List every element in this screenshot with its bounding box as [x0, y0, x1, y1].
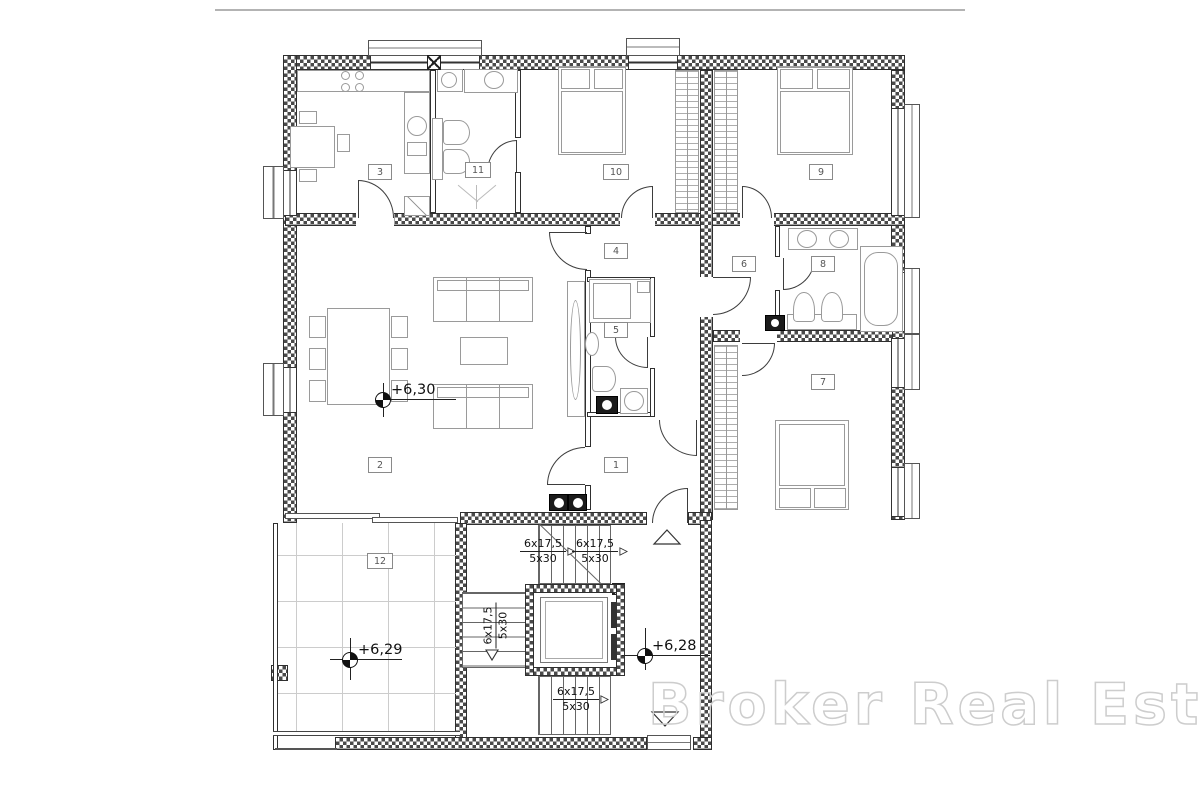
pillow: [594, 69, 623, 89]
stair-going: 5x30: [498, 612, 510, 640]
room-label-6: 6: [732, 256, 756, 272]
room-label-3: 3: [368, 164, 392, 180]
duct-shaft: [568, 494, 587, 511]
coffee-table: [460, 337, 508, 365]
room-label-12: 12: [367, 553, 393, 569]
terrace-sliding-door-a: [285, 513, 380, 519]
wall-room11-room10-lower: [515, 172, 521, 213]
wardrobe-room9: [714, 70, 738, 213]
stairs-up-arrow-icon: [652, 528, 682, 546]
dining-chair: [309, 348, 326, 370]
bath5-sink: [585, 332, 599, 356]
sofa: [433, 384, 533, 429]
dining-chair: [391, 316, 408, 338]
kitchen-chair: [299, 111, 317, 124]
wardrobe-room10: [675, 70, 699, 213]
pillow: [779, 488, 811, 508]
wall-bottom-corner: [693, 737, 712, 750]
duct-shaft: [549, 494, 568, 511]
room-label-4: 4: [604, 243, 628, 259]
window-frame-left-living: [263, 363, 284, 416]
wall-room6-bath8-upper: [775, 226, 780, 257]
blanket: [780, 91, 850, 153]
elevator-shaft-wall-top: [525, 584, 625, 593]
duct-shaft: [765, 315, 785, 331]
stair-label-upper-left: 6x17,5 5x30: [517, 538, 569, 565]
door-arc-bath11: [487, 140, 517, 172]
stairs-down-small-arrow-icon: [484, 648, 500, 662]
stair-arrow-icon: [619, 547, 628, 556]
shower-shelf: [637, 281, 650, 293]
wall-bottom: [335, 737, 647, 750]
door-arc-living-corridor: [549, 232, 587, 270]
door-arc-room6: [713, 277, 751, 315]
kitchen-chair: [337, 134, 350, 152]
window-left-living: [283, 367, 297, 413]
toilet: [821, 292, 843, 322]
bath8-sink: [829, 230, 849, 248]
door-opening-room7: [740, 330, 777, 342]
room-label-8: 8: [811, 256, 835, 272]
terrace-slab-edge: [275, 748, 337, 750]
duct-shaft: [596, 396, 618, 414]
stair-going: 5x30: [562, 701, 590, 713]
bath8-sink: [797, 230, 817, 248]
elevation-value: +6,28: [652, 638, 696, 654]
kitchen-table: [290, 126, 335, 168]
kitchen-chair: [299, 169, 317, 182]
pillow: [814, 488, 846, 508]
window-frame-left-kitchen: [263, 166, 284, 219]
elevator-shaft-wall-left: [525, 584, 534, 676]
elevator-door: [611, 602, 617, 628]
stair-rise: 6x17,5: [557, 686, 595, 698]
washing-machine-drum: [441, 72, 457, 88]
toilet: [793, 292, 815, 322]
elevator-cab-inner: [545, 601, 603, 659]
door-arc-room3: [358, 180, 394, 218]
sofa: [433, 277, 533, 322]
window-frame-right-bath8: [904, 268, 920, 334]
dining-chair: [391, 348, 408, 370]
elevator-door: [611, 634, 617, 660]
door-arc-room7: [742, 343, 775, 376]
elevation-marker-icon: [342, 652, 358, 668]
door-arc-room9: [742, 186, 772, 218]
stair-rise: 6x17,5: [483, 607, 495, 645]
wall-bottom-band-left: [460, 512, 647, 525]
elevation-marker-icon: [637, 648, 653, 664]
blanket: [561, 91, 623, 153]
dining-chair: [309, 380, 326, 402]
window-right-room7-a: [891, 338, 905, 388]
stair-going: 5x30: [581, 553, 609, 565]
washer-bath5-drum: [624, 391, 644, 411]
cabinet-door-leaf: [570, 300, 581, 400]
window-frame-top-room10: [626, 38, 680, 56]
stair-label-lower: 6x17,5 5x30: [550, 686, 602, 713]
dining-chair: [309, 316, 326, 338]
wall-bath5-right-lower: [650, 368, 655, 417]
shower-spray-lines: [447, 183, 507, 216]
marker-crosshair-h: [383, 399, 456, 400]
door-opening-room6: [700, 277, 713, 317]
pillow: [817, 69, 850, 89]
door-arc-corridor-room1: [659, 420, 697, 456]
door-arc-bath5: [615, 337, 648, 368]
kitchen-cabinet: [404, 196, 430, 216]
kitchen-sink: [407, 116, 427, 136]
room-label-2: 2: [368, 457, 392, 473]
hob-burner: [341, 71, 350, 80]
room-label-7: 7: [811, 374, 835, 390]
marker-crosshair-h: [330, 659, 402, 660]
elevation-marker-icon: [375, 392, 391, 408]
bath11-cabinet: [432, 118, 443, 180]
stair-going: 5x30: [529, 553, 557, 565]
room-label-5: 5: [604, 322, 628, 338]
pillow: [780, 69, 813, 89]
elevator-shaft-wall-right: [616, 584, 625, 676]
marker-crosshair-h: [622, 655, 710, 656]
stair-arrow-icon: [600, 695, 609, 704]
toilet: [443, 120, 470, 145]
room-label-9: 9: [809, 164, 833, 180]
door-arc-room10: [621, 186, 653, 218]
hob-burner: [341, 83, 350, 92]
elevation-value: +6,29: [358, 642, 402, 658]
stair-rise: 6x17,5: [524, 538, 562, 550]
door-arc-room1-stairs: [652, 488, 688, 523]
column: [427, 55, 441, 70]
window-right-room9: [891, 108, 905, 216]
blanket: [779, 424, 845, 486]
hob-burner: [355, 71, 364, 80]
dining-table: [327, 308, 390, 405]
window-left-kitchen: [283, 170, 297, 216]
wardrobe-room7: [714, 345, 738, 510]
stair-label-left-flight: 6x17,5 5x30: [483, 600, 510, 652]
window-right-room7-b: [891, 467, 905, 517]
bathtub-inner: [864, 252, 898, 326]
stair-rise: 6x17,5: [576, 538, 614, 550]
kitchen-appliance: [407, 142, 427, 156]
floor-plan: 6x17,5 5x30 6x17,5 5x30 6x17,5 5x30 6x17…: [0, 0, 1200, 800]
room-label-10: 10: [603, 164, 629, 180]
pillow: [561, 69, 590, 89]
elevator-shaft-wall-bottom: [525, 667, 625, 676]
stair-label-upper-right: 6x17,5 5x30: [569, 538, 621, 565]
window-top-kitchen: [370, 55, 480, 70]
room-label-1: 1: [604, 457, 628, 473]
window-top-room10: [628, 55, 678, 70]
room-label-11: 11: [465, 162, 491, 178]
shower-tray: [593, 283, 631, 319]
terrace-edge-bottom: [273, 731, 460, 736]
toilet: [592, 366, 616, 392]
watermark-text: Broker Real Estate: [648, 672, 1200, 738]
elevation-value: +6,30: [391, 382, 435, 398]
window-frame-top-kitchen: [368, 40, 482, 56]
bath11-sink: [484, 71, 504, 89]
hob-burner: [355, 83, 364, 92]
window-frame-right-room9: [904, 104, 920, 218]
top-border-line: [215, 9, 965, 11]
door-arc-living-room1: [547, 447, 585, 485]
window-frame-right-room7-a: [904, 334, 920, 390]
window-frame-right-room7-b: [904, 463, 920, 519]
